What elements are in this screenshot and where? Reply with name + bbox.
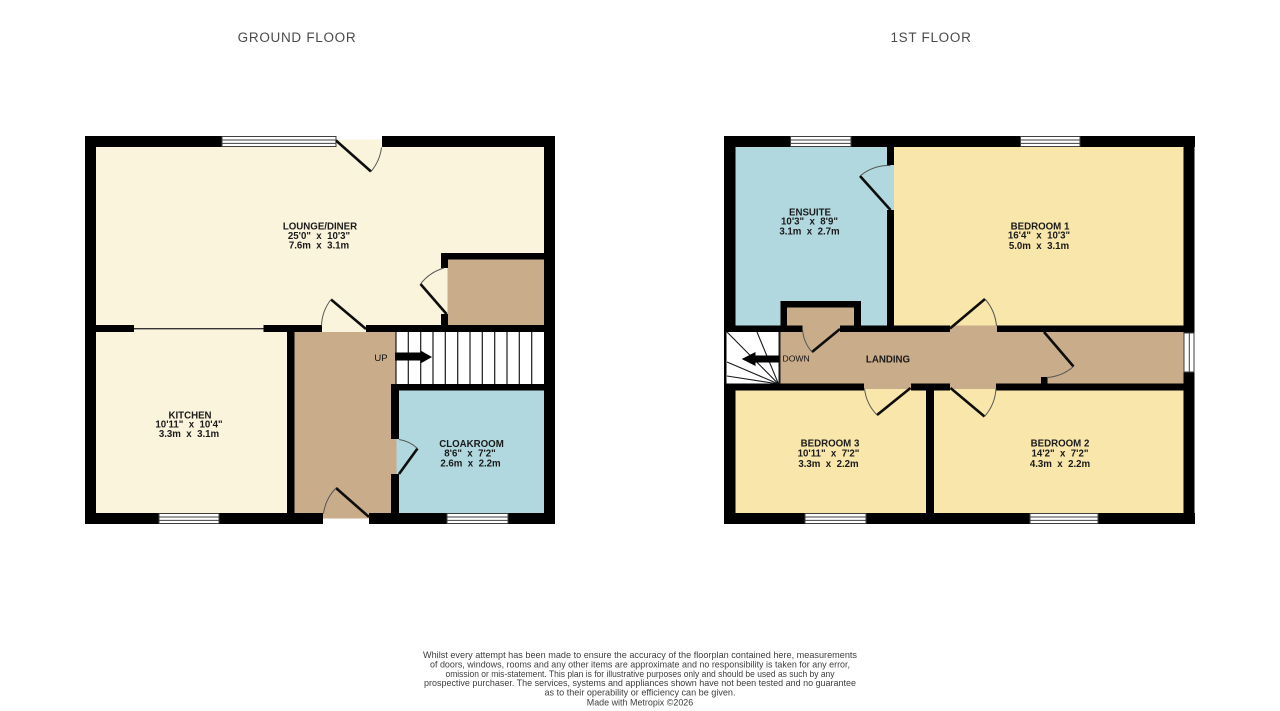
svg-text:5.0m x 3.1m: 5.0m x 3.1m (1009, 241, 1070, 252)
svg-text:Made with Metropix ©2026: Made with Metropix ©2026 (587, 697, 694, 707)
svg-text:16'4" x 10'3": 16'4" x 10'3" (1008, 231, 1070, 242)
svg-text:3.1m x 2.7m: 3.1m x 2.7m (779, 226, 840, 237)
svg-text:UP: UP (374, 353, 387, 364)
svg-text:2.6m x 2.2m: 2.6m x 2.2m (440, 459, 501, 470)
svg-text:LANDING: LANDING (866, 354, 910, 365)
svg-text:3.3m x 2.2m: 3.3m x 2.2m (798, 459, 859, 470)
svg-text:GROUND FLOOR: GROUND FLOOR (238, 30, 357, 45)
svg-text:7.6m x 3.1m: 7.6m x 3.1m (289, 241, 350, 252)
svg-text:4.3m x 2.2m: 4.3m x 2.2m (1030, 459, 1091, 470)
svg-text:as to their operability or eff: as to their operability or efficiency ca… (545, 688, 736, 698)
svg-text:DOWN: DOWN (783, 354, 810, 364)
svg-text:1ST FLOOR: 1ST FLOOR (890, 30, 971, 45)
svg-text:3.3m x 3.1m: 3.3m x 3.1m (159, 429, 220, 440)
